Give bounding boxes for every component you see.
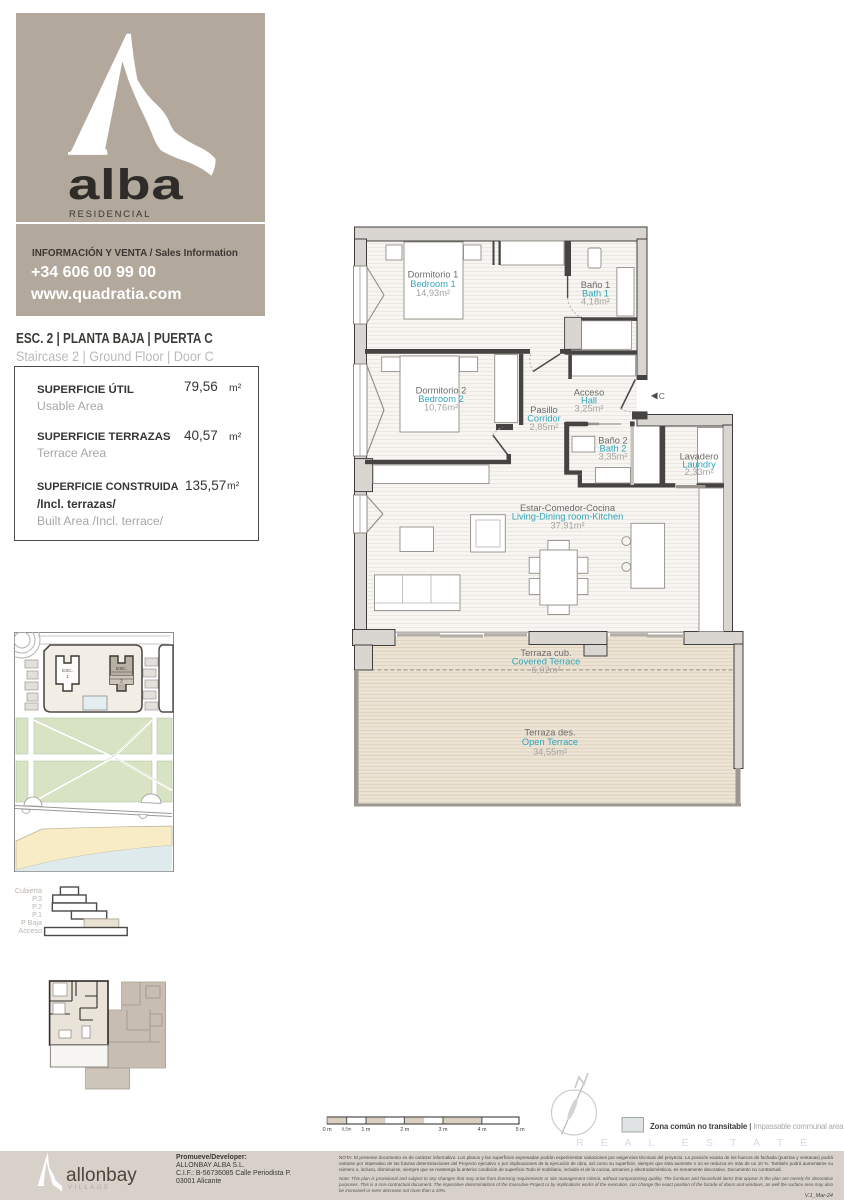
svg-text:3,35m²: 3,35m² xyxy=(599,452,628,462)
svg-text:2,85m²: 2,85m² xyxy=(530,422,559,432)
svg-text:6,02m²: 6,02m² xyxy=(532,665,561,675)
svg-text:0,5m: 0,5m xyxy=(342,1127,352,1132)
svg-text:2,33m²: 2,33m² xyxy=(685,467,714,477)
svg-text:ESC.: ESC. xyxy=(62,668,73,673)
svg-text:3,25m²: 3,25m² xyxy=(575,404,604,414)
svg-text:34,55m²: 34,55m² xyxy=(533,747,567,757)
svg-text:Acceso: Acceso xyxy=(18,926,42,935)
svg-text:Terraza des.: Terraza des. xyxy=(524,728,575,738)
svg-text:2: 2 xyxy=(120,679,123,684)
svg-text:0 m: 0 m xyxy=(323,1127,332,1133)
svg-text:1: 1 xyxy=(66,674,69,679)
svg-text:ESC.: ESC. xyxy=(116,666,127,671)
svg-text:1 m: 1 m xyxy=(361,1127,370,1133)
svg-text:14,93m²: 14,93m² xyxy=(416,288,450,298)
svg-text:4 m: 4 m xyxy=(478,1127,487,1133)
svg-text:Zona común no transitable | Im: Zona común no transitable | Impassable c… xyxy=(650,1122,844,1131)
svg-text:10,76m²: 10,76m² xyxy=(424,403,458,413)
svg-text:37,91m²: 37,91m² xyxy=(550,521,584,531)
svg-text:Open Terrace: Open Terrace xyxy=(522,737,578,747)
svg-text:4,18m²: 4,18m² xyxy=(581,297,610,307)
svg-text:C: C xyxy=(659,391,665,401)
svg-text:3 m: 3 m xyxy=(439,1127,448,1133)
svg-text:2 m: 2 m xyxy=(400,1127,409,1133)
svg-text:5 m: 5 m xyxy=(516,1127,525,1133)
